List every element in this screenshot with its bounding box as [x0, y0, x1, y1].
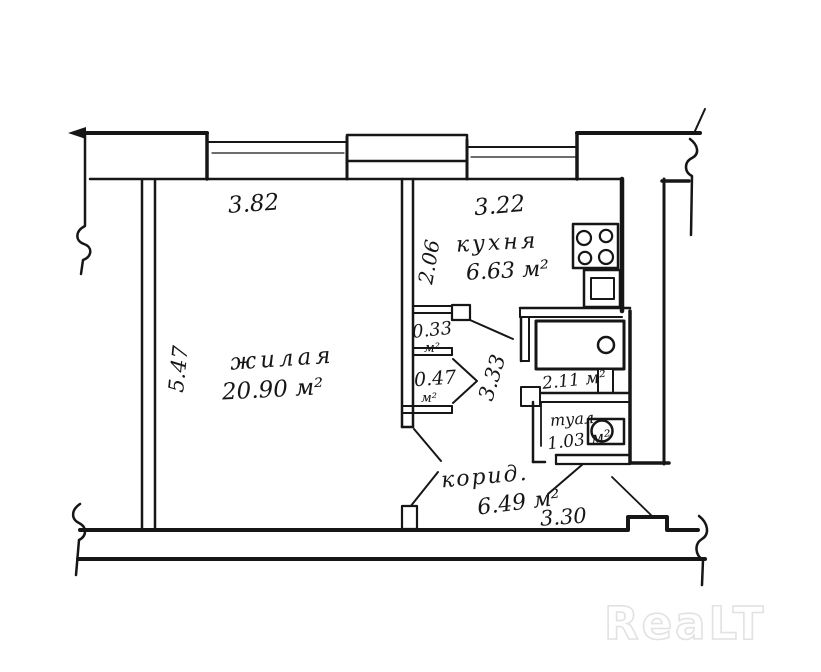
- kitchen-door-leaf: [470, 320, 513, 339]
- floor-plan-page: 3.82 3.22 кухня 6.63 м² 2.06 жилая 20.90…: [0, 0, 821, 672]
- floor-plan-drawing: 3.82 3.22 кухня 6.63 м² 2.06 жилая 20.90…: [0, 0, 821, 672]
- top-wall: [68, 127, 700, 179]
- dimension-kitchen-depth: 2.06: [413, 238, 445, 287]
- door-jamb: [521, 387, 540, 406]
- closet-big-unit: м²: [421, 391, 437, 406]
- dimension-left: 5.47: [164, 344, 193, 394]
- living-room-door: [402, 429, 441, 529]
- bottom-wall: [78, 517, 705, 559]
- leader-line: [612, 477, 652, 516]
- room-area-living: 20.90 м²: [220, 374, 324, 405]
- room-label-living: жилая: [229, 343, 335, 376]
- room-area-kitchen: 6.63 м²: [465, 256, 549, 285]
- room-label-kitchen: кухня: [455, 228, 539, 257]
- closet-small-unit: м²: [424, 341, 440, 356]
- dimension-corridor: 3.33: [474, 352, 511, 404]
- room-area-toilet: 1.03 м²: [546, 427, 612, 455]
- stove-icon: [573, 224, 618, 268]
- right-wall: [630, 179, 689, 464]
- closet-big-area: 0.47: [413, 366, 458, 391]
- left-partition-wall: [142, 180, 155, 530]
- watermark: ReaLT: [604, 597, 766, 650]
- window-living: [207, 133, 347, 179]
- wall-pier: [347, 135, 467, 161]
- dimension-arrow-icon: [68, 127, 86, 139]
- dimension-top-right: 3.22: [473, 191, 526, 221]
- window-kitchen: [467, 133, 577, 179]
- dimension-top-left: 3.82: [227, 189, 280, 219]
- closet-small-area: 0.33: [411, 318, 453, 343]
- dimension-bottom: 3.30: [539, 504, 587, 531]
- door-jamb: [402, 506, 417, 529]
- sink-icon: [584, 270, 620, 307]
- room-label-corridor: корид.: [440, 461, 529, 494]
- room-label-toilet: туал.: [549, 408, 599, 430]
- door-jamb: [452, 305, 470, 320]
